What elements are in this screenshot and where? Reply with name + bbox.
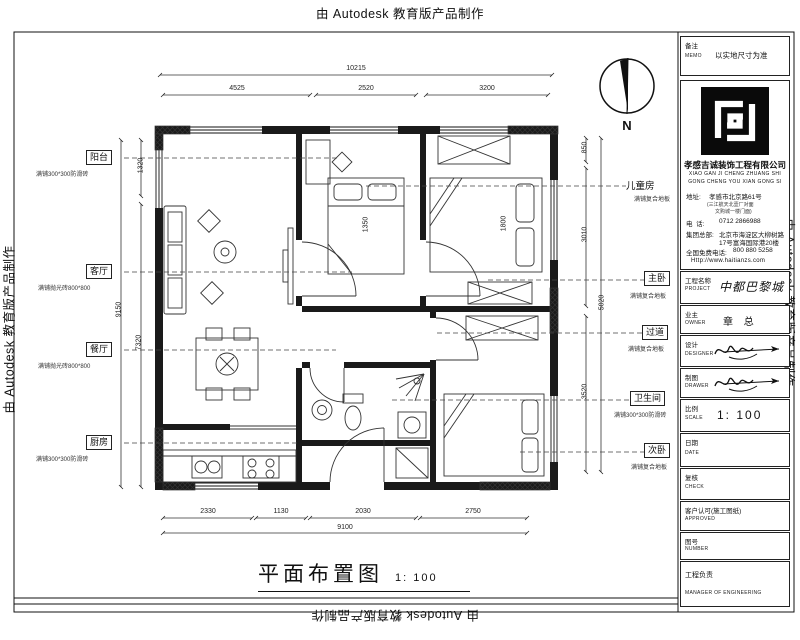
drawer-en: DRAWER <box>685 383 709 389</box>
dim-left-2: 9150 <box>116 290 123 330</box>
room-material-children: 满铺复合地板 <box>634 194 670 203</box>
approved-en: APPROVED <box>685 516 715 522</box>
room-label-master: 主卧 <box>644 271 670 286</box>
titleblock-company: 孝感吉诚装饰工程有限公司 XIAO GAN JI CHENG ZHUANG SH… <box>680 80 790 270</box>
dim-bottom-1: 2330 <box>188 508 228 515</box>
decor-diamonds <box>198 210 224 305</box>
toilet <box>343 394 363 430</box>
room-label-bathroom: 卫生间 <box>630 391 665 406</box>
room-label-balcony: 阳台 <box>86 150 112 165</box>
titleblock-designer: 设计 DESIGNER <box>680 335 790 367</box>
room-label-children: 儿童房 <box>626 178 655 192</box>
owner-en: OWNER <box>685 320 706 326</box>
kitchen-counter <box>163 450 296 482</box>
dim-right-4: 3520 <box>582 372 589 412</box>
coffee-table <box>214 241 236 263</box>
company-pinyin-1: XIAO GAN JI CHENG ZHUANG SHI <box>681 171 789 177</box>
check-en: CHECK <box>685 484 704 490</box>
company-hq-label: 集团总部: <box>686 229 714 239</box>
north-arrow-icon <box>600 58 654 114</box>
second-bed <box>444 394 544 476</box>
dim-master-bed: 1800 <box>501 204 508 244</box>
washer <box>398 412 426 438</box>
sofa <box>164 206 186 314</box>
drawer-label: 制图 <box>685 372 698 382</box>
sheet-frame <box>14 32 794 612</box>
dim-bottom-3: 2030 <box>343 508 383 515</box>
project-en: PROJECT <box>685 286 710 292</box>
corridor-wardrobe <box>468 282 532 304</box>
scale-label: 比例 <box>685 403 698 413</box>
company-address-note-2: 文购城一楼门面) <box>715 208 752 215</box>
owner-label: 业主 <box>685 309 698 319</box>
autodesk-credit-bottom: 由 Autodesk 教育版产品制作 <box>285 607 505 626</box>
plan-title-block: 平面布置图 1: 100 <box>258 558 470 592</box>
second-wardrobe <box>466 316 538 340</box>
autodesk-credit-top: 由 Autodesk 教育版产品制作 <box>250 3 550 22</box>
company-phone: 0712 2866988 <box>719 218 761 225</box>
dim-bottom-4: 2750 <box>453 508 493 515</box>
scale-en: SCALE <box>685 415 703 421</box>
room-material-master: 满铺复合地板 <box>630 291 666 300</box>
dim-top-total: 10215 <box>336 65 376 72</box>
master-wardrobe <box>438 136 510 164</box>
room-label-second: 次卧 <box>644 443 670 458</box>
room-material-living: 满铺抛光砖800*800 <box>38 283 90 292</box>
check-label: 复核 <box>685 472 698 482</box>
dim-right-2: 3010 <box>582 215 589 255</box>
owner-value: 章 总 <box>723 313 758 328</box>
titleblock-memo: 备注 MEMO 以实地尺寸为准 <box>680 36 790 76</box>
company-address-label: 地址: <box>686 191 701 201</box>
room-material-balcony: 满铺300*300防滑砖 <box>36 169 88 178</box>
memo-label: 备注 <box>685 40 698 50</box>
plan-title-scale: 1: 100 <box>395 572 438 584</box>
plan-title: 平面布置图 <box>258 558 383 588</box>
project-label: 工程名称 <box>685 275 711 285</box>
titleblock-check: 复核 CHECK <box>680 468 790 500</box>
room-material-bathroom: 满铺300*300防滑砖 <box>614 410 666 419</box>
company-hotline: 800 880 5258 <box>733 247 773 254</box>
company-website: Http://www.haitianzs.com <box>691 258 765 264</box>
company-logo <box>701 87 769 155</box>
dim-top-3: 3200 <box>467 85 507 92</box>
titleblock-owner: 业主 OWNER 章 总 <box>680 305 790 334</box>
tv-cabinet <box>283 228 293 304</box>
room-material-dining: 满铺抛光砖800*800 <box>38 361 90 370</box>
dim-bottom-2: 1130 <box>261 508 301 515</box>
room-label-living: 客厅 <box>86 264 112 279</box>
dining-set <box>196 328 258 400</box>
autodesk-credit-left: 由 Autodesk 教育版产品制作 <box>0 230 18 430</box>
project-value: 中都巴黎城 <box>719 278 784 295</box>
company-address-note-1: (三江航天北壹厂对面 <box>707 201 754 208</box>
titleblock-date: 日期 DATE <box>680 433 790 467</box>
date-en: DATE <box>685 450 699 456</box>
dim-bottom-total: 9100 <box>325 524 365 531</box>
number-en: NUMBER <box>685 546 708 552</box>
company-hotline-label: 全国免费电话: <box>686 247 727 257</box>
shower <box>396 374 424 401</box>
company-phone-label: 电 话: <box>686 218 704 228</box>
dim-left-1: 1320 <box>138 146 145 186</box>
shoe-cabinet <box>396 448 428 478</box>
designer-signature <box>709 338 787 364</box>
titleblock-approved: 客户认可(施工图纸) APPROVED <box>680 501 790 531</box>
designer-label: 设计 <box>685 339 698 349</box>
scale-value: 1: 100 <box>717 408 762 422</box>
room-material-second: 满铺复合地板 <box>631 462 667 471</box>
leader-lines <box>124 158 644 452</box>
dim-right-1: 850 <box>582 128 589 168</box>
titleblock-project: 工程名称 PROJECT 中都巴黎城 <box>680 271 790 304</box>
manager-label: 工程负责 <box>685 570 713 580</box>
child-desk <box>306 140 352 184</box>
room-material-kitchen: 满铺300*300防滑砖 <box>36 454 88 463</box>
number-label: 图号 <box>685 536 698 546</box>
memo-en: MEMO <box>685 53 702 59</box>
north-label: N <box>617 118 637 133</box>
dim-child-bed: 1350 <box>363 205 370 245</box>
room-material-corridor: 满铺复合地板 <box>628 344 664 353</box>
room-label-dining: 餐厅 <box>86 342 112 357</box>
company-address: 孝感市北京路61号 <box>709 191 762 201</box>
cad-sheet: { "autodesk_credit": "由 Autodesk 教育版产品制作… <box>0 0 800 640</box>
date-label: 日期 <box>685 437 698 447</box>
titleblock-scale: 比例 SCALE 1: 100 <box>680 399 790 432</box>
titleblock-drawer: 制图 DRAWER <box>680 368 790 398</box>
memo-value: 以实地尺寸为准 <box>715 50 768 61</box>
titleblock-manager: 工程负责 MANAGER OF ENGINEERING <box>680 561 790 607</box>
dim-left-3: 7320 <box>136 323 143 363</box>
company-pinyin-2: GONG CHENG YOU XIAN GONG SI <box>681 179 789 185</box>
titleblock-number: 图号 NUMBER <box>680 532 790 560</box>
dim-top-2: 2520 <box>346 85 386 92</box>
company-name: 孝感吉诚装饰工程有限公司 <box>681 159 789 171</box>
master-bed <box>430 178 542 272</box>
room-label-kitchen: 厨房 <box>86 435 112 450</box>
dim-right-3: 5020 <box>599 283 606 323</box>
dim-top-1: 4525 <box>217 85 257 92</box>
company-hq-line2: 17号富海国际港20楼 <box>719 237 779 247</box>
manager-en: MANAGER OF ENGINEERING <box>685 590 762 596</box>
drawer-signature <box>709 370 787 396</box>
room-label-corridor: 过道 <box>642 325 668 340</box>
approved-label: 客户认可(施工图纸) <box>685 505 741 515</box>
bath-sink <box>312 400 332 420</box>
